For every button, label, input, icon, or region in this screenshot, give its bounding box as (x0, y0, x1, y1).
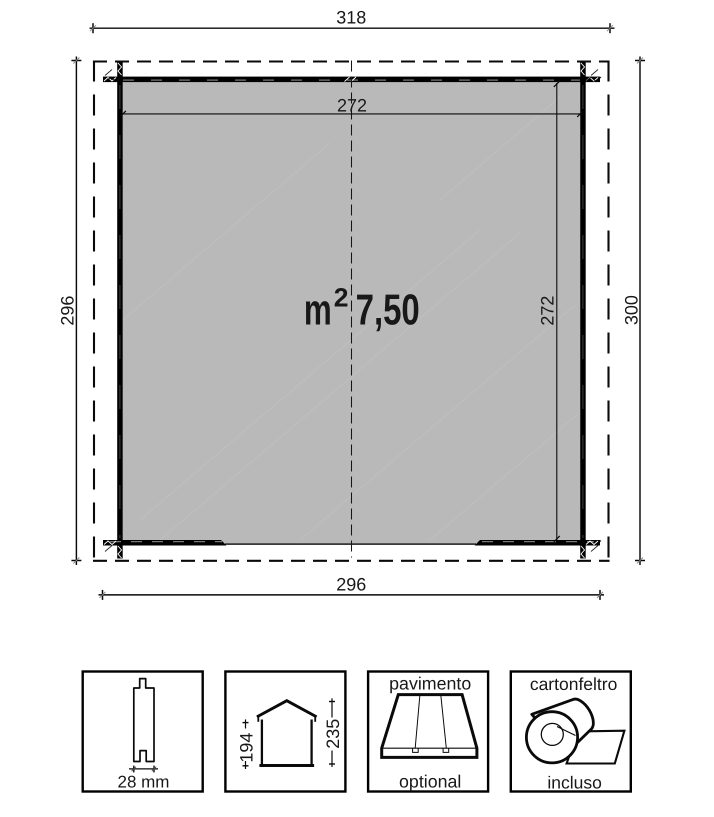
svg-text:cartonfeltro: cartonfeltro (530, 674, 618, 694)
svg-text:28 mm: 28 mm (118, 773, 170, 792)
svg-text:optional: optional (399, 771, 461, 791)
svg-text:235: 235 (323, 719, 343, 749)
svg-text:296: 296 (58, 296, 78, 326)
svg-text:pavimento: pavimento (389, 673, 471, 693)
svg-text:m: m (304, 286, 332, 334)
svg-text:300: 300 (621, 295, 641, 325)
svg-text:7,50: 7,50 (356, 286, 420, 334)
svg-text:194: 194 (237, 733, 257, 763)
svg-text:318: 318 (336, 8, 366, 28)
svg-text:272: 272 (537, 296, 557, 326)
svg-text:296: 296 (336, 574, 366, 594)
svg-text:272: 272 (337, 95, 367, 115)
svg-text:incluso: incluso (547, 772, 601, 792)
svg-text:2: 2 (334, 283, 349, 313)
